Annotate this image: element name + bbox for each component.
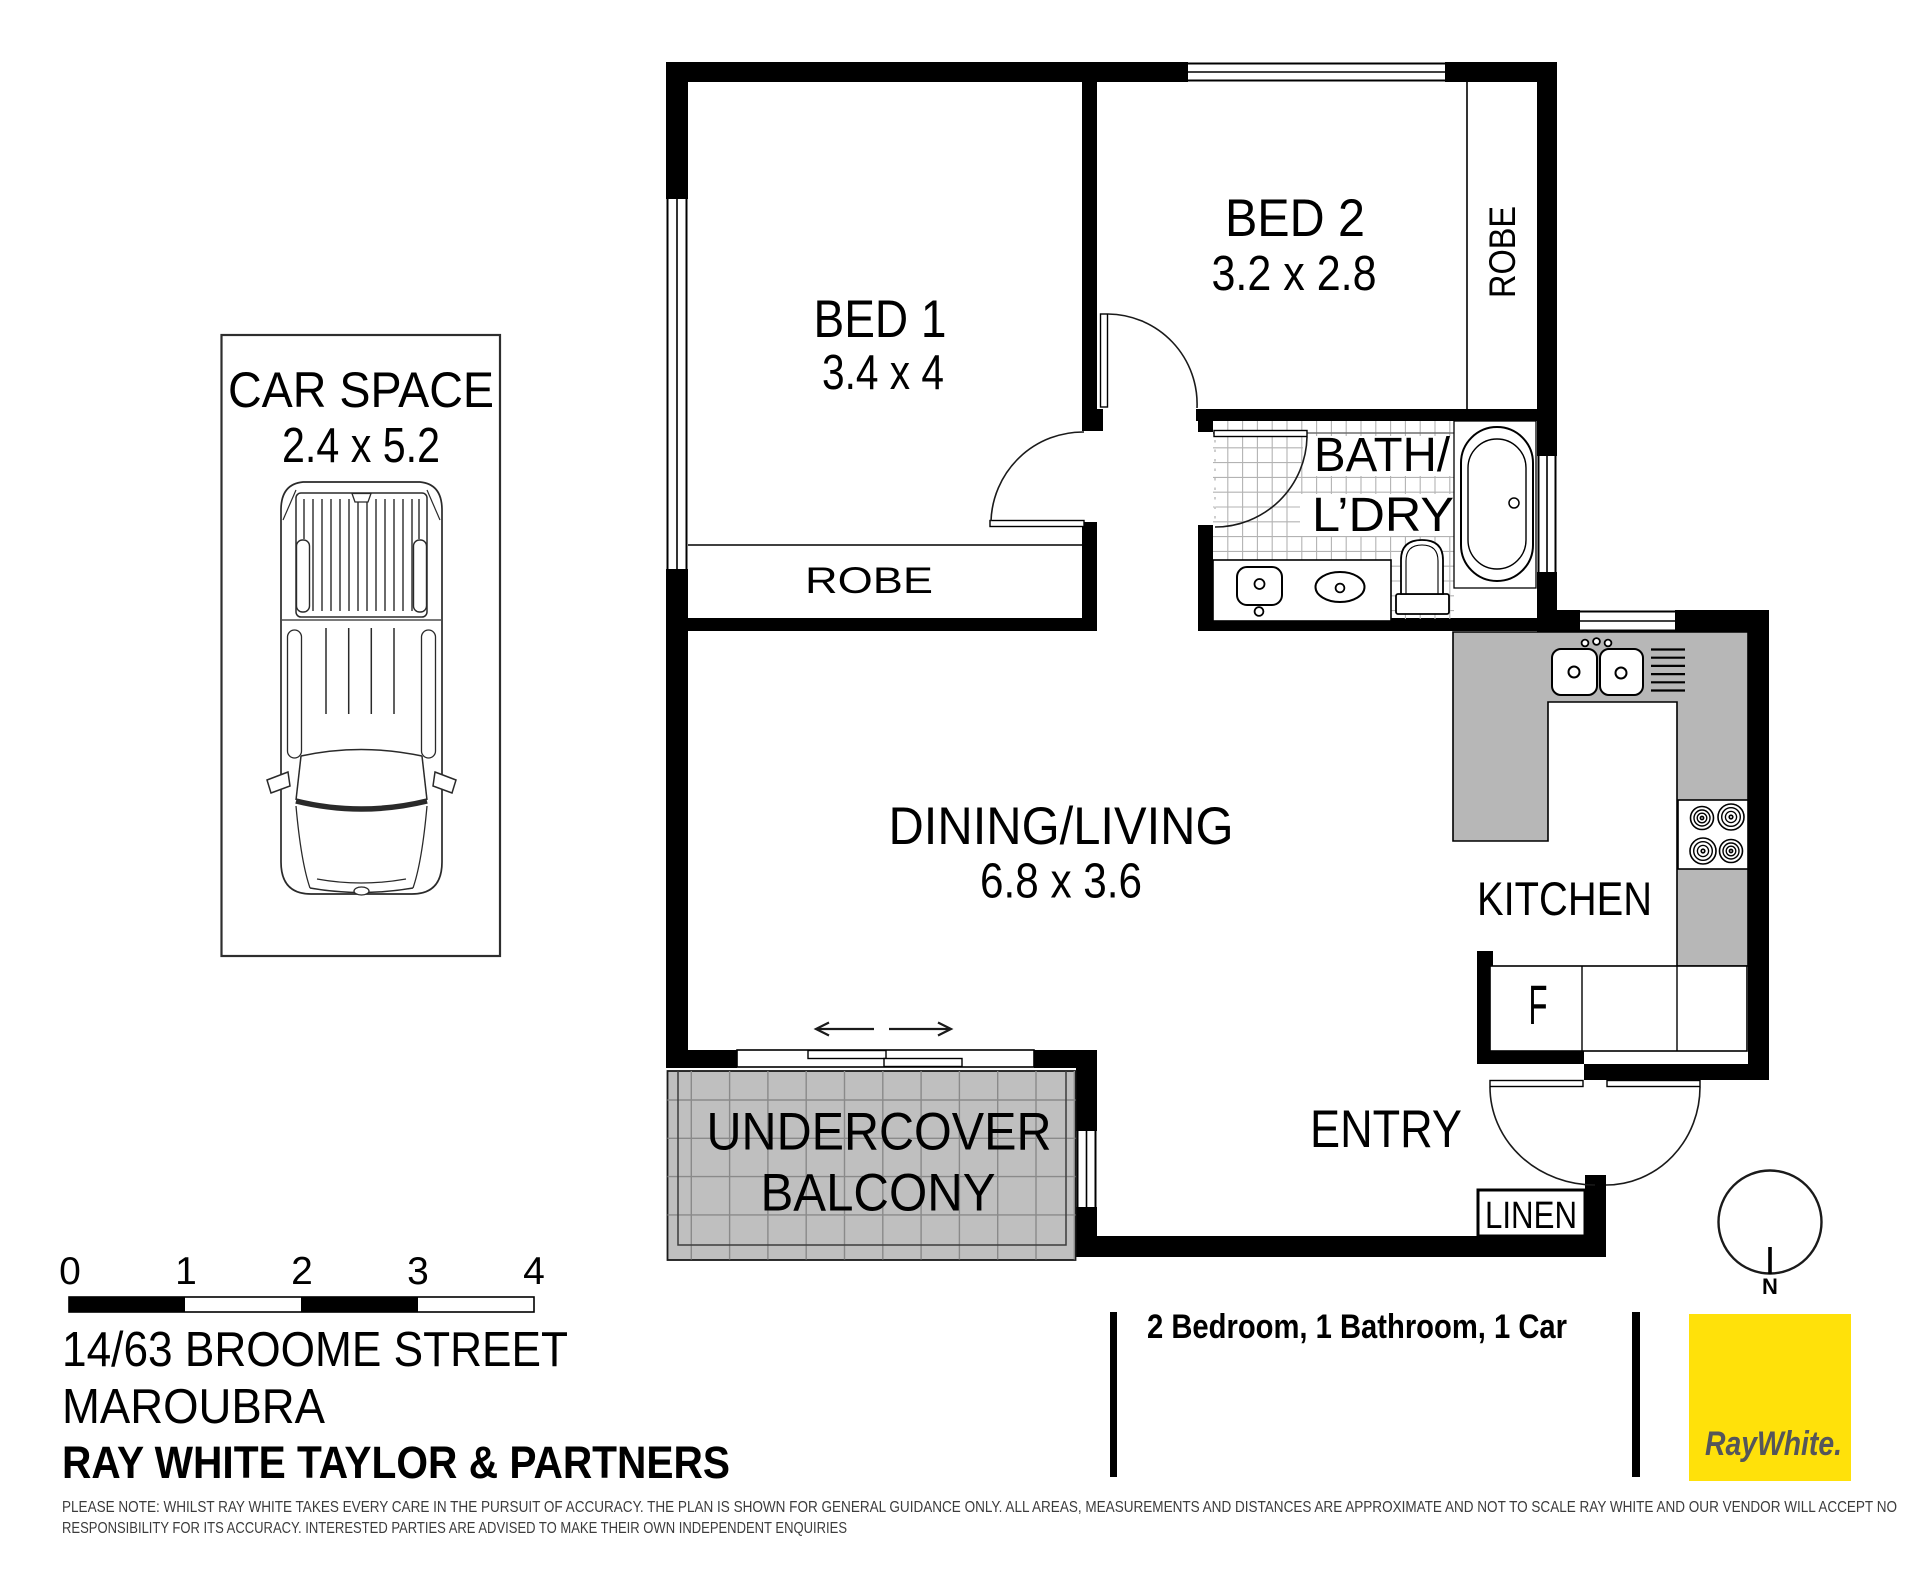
- svg-text:2.4 x 5.2: 2.4 x 5.2: [282, 419, 440, 473]
- svg-text:BALCONY: BALCONY: [761, 1164, 996, 1223]
- svg-text:L’DRY: L’DRY: [1312, 489, 1454, 542]
- svg-text:LINEN: LINEN: [1485, 1195, 1577, 1237]
- svg-text:MAROUBRA: MAROUBRA: [62, 1380, 325, 1434]
- svg-text:BATH/: BATH/: [1314, 429, 1451, 482]
- svg-text:CAR SPACE: CAR SPACE: [228, 362, 494, 418]
- svg-text:BED 1: BED 1: [814, 290, 947, 349]
- svg-text:ROBE: ROBE: [805, 560, 933, 601]
- svg-text:N: N: [1762, 1274, 1778, 1299]
- svg-text:3.4 x 4: 3.4 x 4: [822, 346, 944, 400]
- svg-text:2 Bedroom, 1 Bathroom, 1 Car: 2 Bedroom, 1 Bathroom, 1 Car: [1147, 1308, 1567, 1346]
- svg-text:6.8 x 3.6: 6.8 x 3.6: [980, 855, 1142, 909]
- svg-text:4: 4: [523, 1250, 545, 1293]
- svg-text:RAY WHITE TAYLOR & PARTNERS: RAY WHITE TAYLOR & PARTNERS: [62, 1437, 730, 1488]
- svg-text:F: F: [1529, 973, 1548, 1036]
- svg-text:3.2 x 2.8: 3.2 x 2.8: [1212, 247, 1377, 301]
- svg-text:PLEASE NOTE: WHILST RAY WHITE: PLEASE NOTE: WHILST RAY WHITE TAKES EVER…: [62, 1499, 1897, 1516]
- svg-text:1: 1: [175, 1250, 197, 1293]
- svg-text:3: 3: [407, 1250, 429, 1293]
- svg-text:ROBE: ROBE: [1482, 206, 1523, 298]
- svg-text:RESPONSIBILITY FOR ITS ACCURAC: RESPONSIBILITY FOR ITS ACCURACY. INTERES…: [62, 1520, 847, 1537]
- svg-text:DINING/LIVING: DINING/LIVING: [889, 797, 1234, 856]
- svg-text:ENTRY: ENTRY: [1310, 1100, 1462, 1159]
- svg-text:0: 0: [59, 1250, 81, 1293]
- svg-text:UNDERCOVER: UNDERCOVER: [707, 1103, 1052, 1162]
- svg-text:BED 2: BED 2: [1225, 189, 1365, 248]
- svg-text:2: 2: [291, 1250, 313, 1293]
- svg-text:KITCHEN: KITCHEN: [1477, 872, 1652, 925]
- svg-text:14/63 BROOME STREET: 14/63 BROOME STREET: [62, 1323, 568, 1377]
- svg-text:RayWhite.: RayWhite.: [1705, 1425, 1842, 1463]
